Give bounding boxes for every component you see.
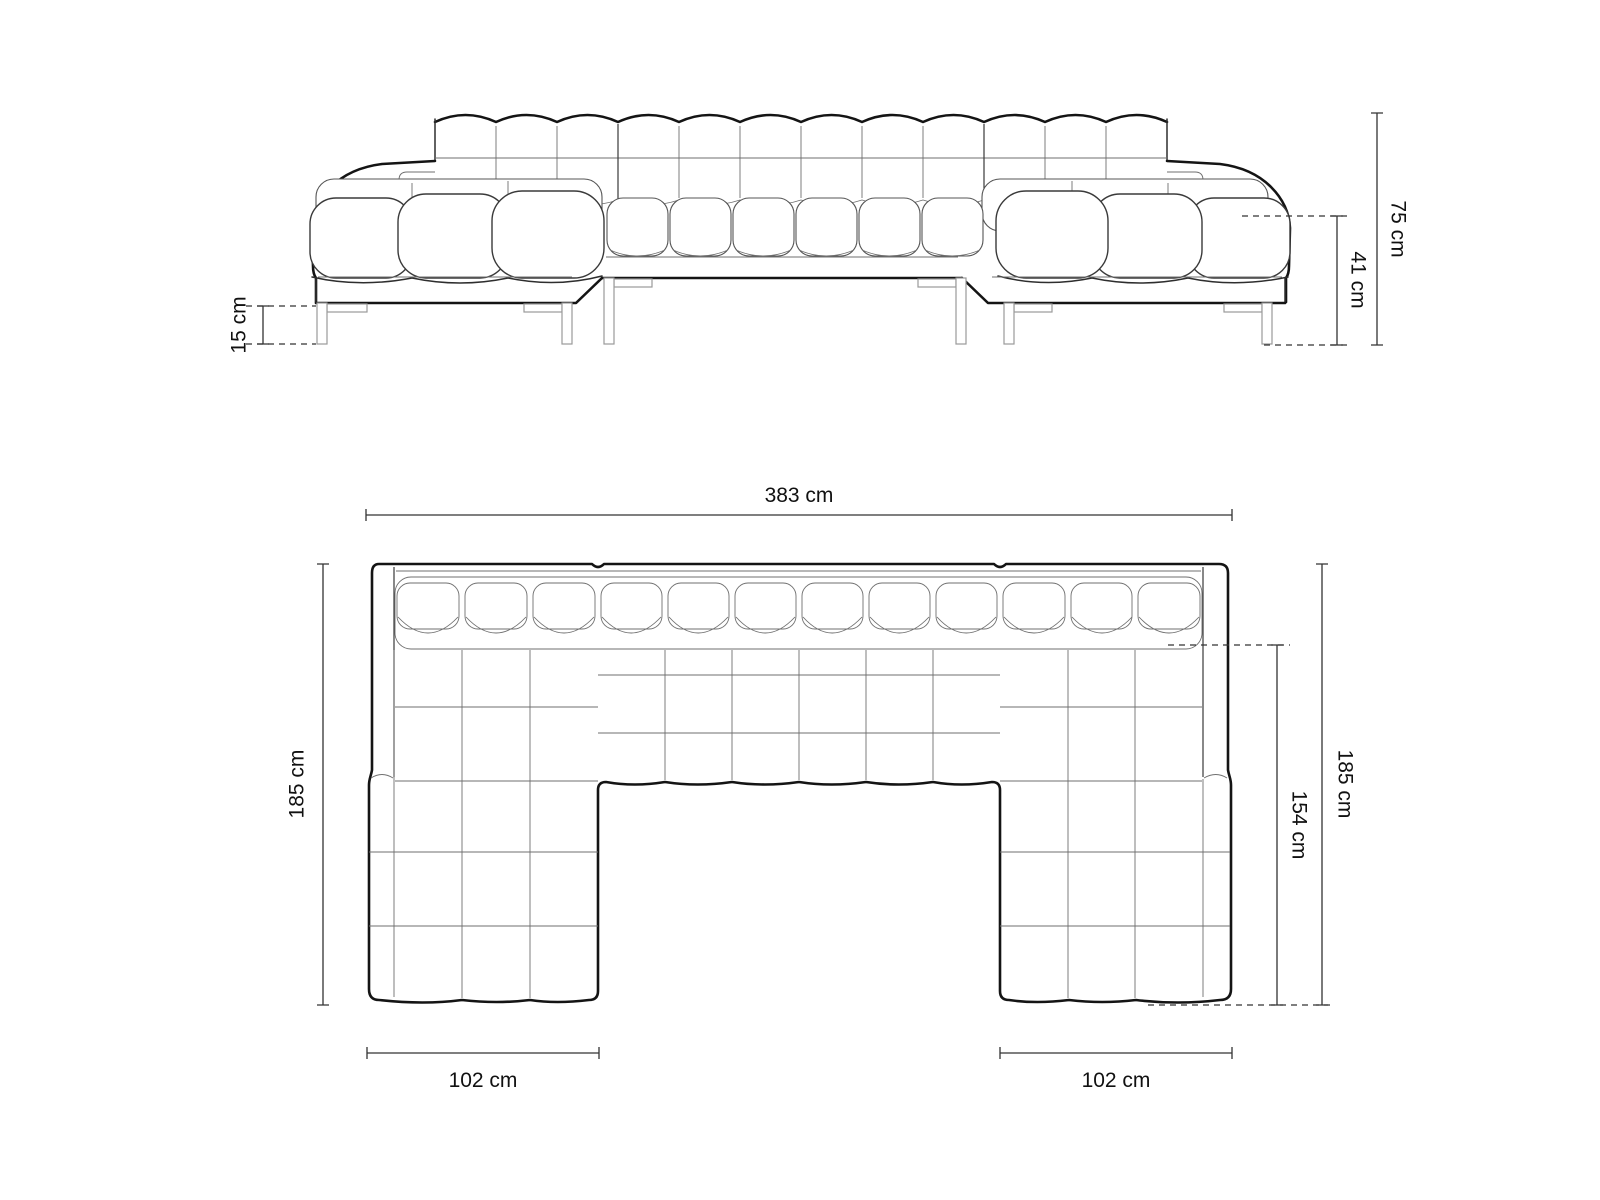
depth-right-label: 185 cm: [1333, 750, 1356, 819]
diagram-svg: 15 cm 41 cm 75 cm: [0, 0, 1600, 1200]
depth-left-label: 185 cm: [286, 750, 309, 819]
dim-leg-height: 15 cm: [228, 296, 316, 353]
plan-view-drawing: 383 cm 185 cm 185 cm 154 cm 102 cm 102 c…: [286, 484, 1357, 1092]
dim-total-height: 75 cm: [1371, 113, 1409, 345]
total-width-label: 383 cm: [765, 484, 834, 507]
dim-chaise-depth-inner: 154 cm: [1148, 645, 1334, 1005]
chaise-depth-label: 154 cm: [1287, 791, 1310, 860]
total-height-label: 75 cm: [1386, 200, 1409, 257]
dim-depth-right: 185 cm: [1316, 564, 1356, 1005]
front-view-drawing: 15 cm 41 cm 75 cm: [228, 113, 1410, 354]
right-chaise-cushions: [996, 191, 1290, 283]
seat-height-label: 41 cm: [1346, 251, 1369, 308]
sofa-legs: [317, 278, 1272, 344]
left-chaise-cushions: [310, 191, 604, 283]
plan-outline: [369, 564, 1231, 1003]
chaise-width-right-label: 102 cm: [1082, 1069, 1151, 1092]
base-rail: [316, 277, 1285, 303]
dim-chaise-width-right: 102 cm: [1000, 1047, 1232, 1092]
chaise-width-left-label: 102 cm: [449, 1069, 518, 1092]
sofa-dimension-diagram: 15 cm 41 cm 75 cm: [0, 0, 1600, 1200]
dim-depth-left: 185 cm: [286, 564, 329, 1005]
plan-tuft-grid: [369, 650, 1230, 998]
dim-chaise-width-left: 102 cm: [367, 1047, 599, 1092]
leg-height-label: 15 cm: [228, 296, 251, 353]
plan-back-cushions: [395, 577, 1202, 649]
center-seat-cushions: [602, 198, 983, 278]
dim-total-width: 383 cm: [366, 484, 1232, 521]
